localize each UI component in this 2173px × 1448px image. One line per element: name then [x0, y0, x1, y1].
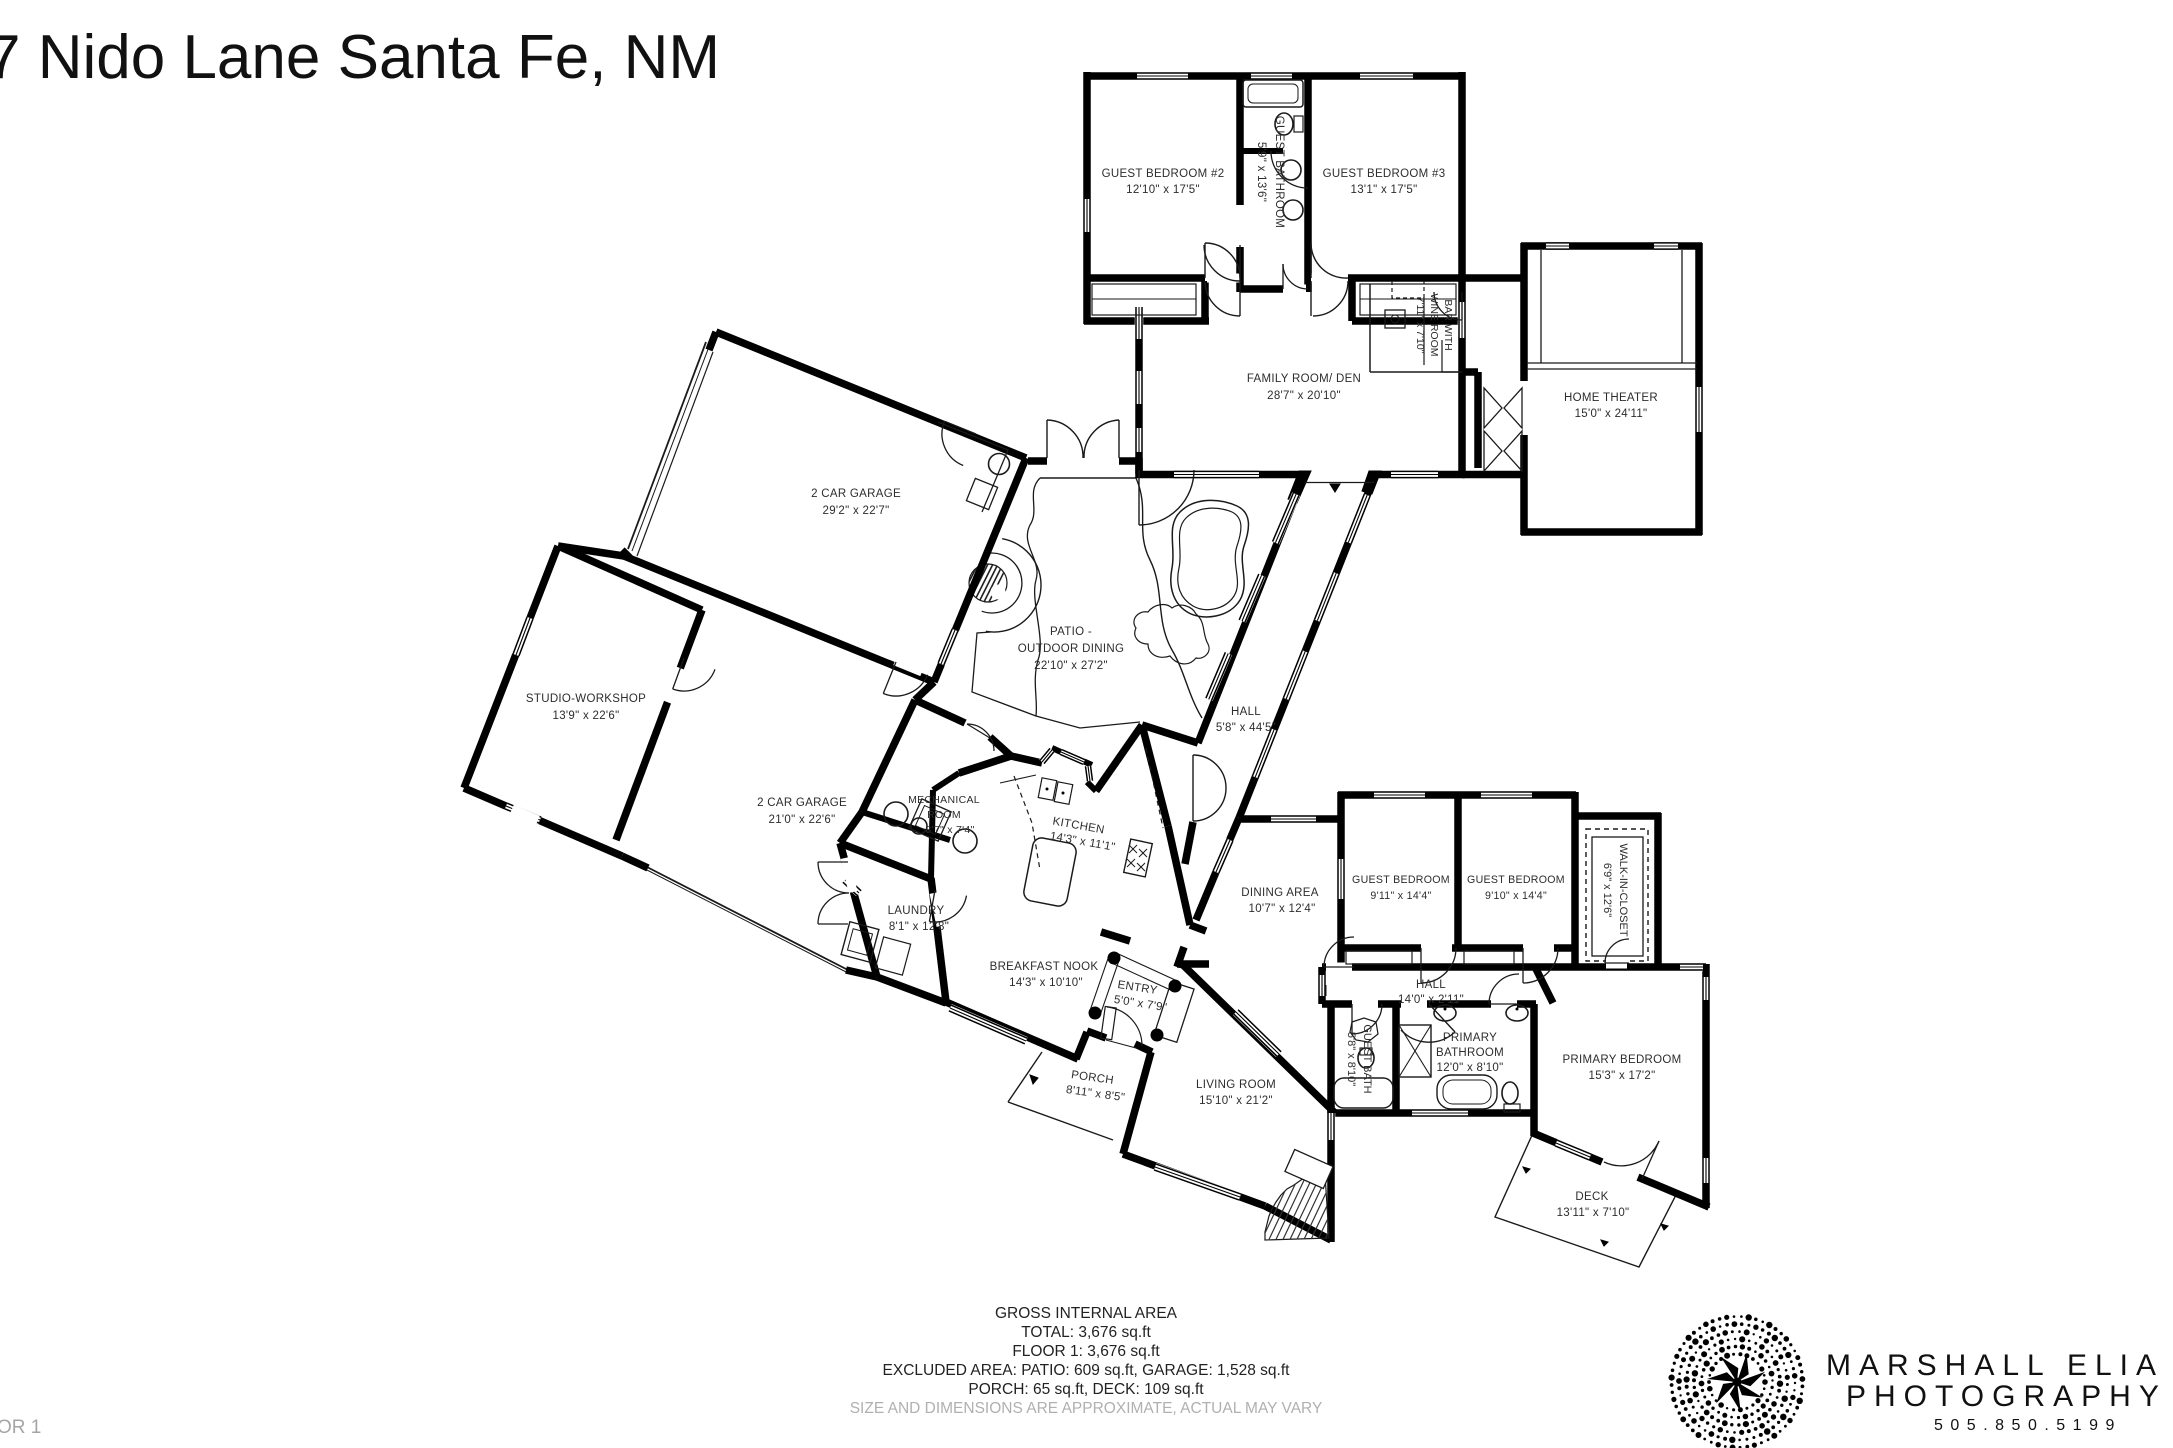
svg-text:5'9" x 13'6": 5'9" x 13'6"	[1255, 142, 1267, 202]
svg-text:14'3" x 10'10": 14'3" x 10'10"	[1009, 977, 1083, 989]
svg-text:WINE ROOM: WINE ROOM	[1428, 294, 1440, 357]
svg-text:13'9" x 22'6": 13'9" x 22'6"	[553, 710, 620, 722]
svg-text:12'0" x 8'10": 12'0" x 8'10"	[1437, 1062, 1504, 1074]
svg-text:DECK: DECK	[1575, 1191, 1608, 1203]
svg-text:EXCLUDED AREA: PATIO: 609 sq.f: EXCLUDED AREA: PATIO: 609 sq.ft, GARAGE:…	[883, 1362, 1291, 1379]
svg-text:15'3" x 17'2": 15'3" x 17'2"	[1589, 1070, 1656, 1082]
svg-text:28'7" x 20'10": 28'7" x 20'10"	[1267, 390, 1341, 402]
svg-text:GUEST BEDROOM #3: GUEST BEDROOM #3	[1323, 168, 1446, 180]
svg-text:14'0" x 2'11": 14'0" x 2'11"	[1398, 994, 1464, 1006]
svg-text:GUEST BATHROOM: GUEST BATHROOM	[1273, 116, 1285, 228]
svg-text:8'7" x 7'4": 8'7" x 7'4"	[925, 824, 974, 836]
svg-text:GUEST BEDROOM #2: GUEST BEDROOM #2	[1102, 168, 1225, 180]
svg-text:WALK-IN-CLOSET: WALK-IN-CLOSET	[1617, 843, 1629, 936]
svg-text:PRIMARY BEDROOM: PRIMARY BEDROOM	[1562, 1054, 1681, 1066]
svg-text:505.850.5199: 505.850.5199	[1934, 1417, 2122, 1434]
svg-text:21'0" x 22'6": 21'0" x 22'6"	[769, 814, 836, 826]
svg-text:MECHANICAL: MECHANICAL	[908, 794, 980, 806]
svg-text:LAUNDRY: LAUNDRY	[888, 905, 945, 917]
svg-text:13'1" x 17'5": 13'1" x 17'5"	[1351, 184, 1418, 196]
svg-text:GUEST BEDROOM: GUEST BEDROOM	[1352, 874, 1450, 886]
svg-text:7'11" x 7'10": 7'11" x 7'10"	[1414, 297, 1426, 354]
svg-text:MARSHALL ELIA: MARSHALL ELIA	[1826, 1349, 2164, 1382]
svg-text:PORCH: 65 sq.ft, DECK: 109 sq.: PORCH: 65 sq.ft, DECK: 109 sq.ft	[968, 1381, 1204, 1398]
svg-text:9'10" x 14'4": 9'10" x 14'4"	[1485, 890, 1547, 902]
svg-text:FAMILY ROOM/ DEN: FAMILY ROOM/ DEN	[1247, 373, 1361, 385]
svg-text:BREAKFAST NOOK: BREAKFAST NOOK	[990, 961, 1099, 973]
svg-text:PATIO -: PATIO -	[1050, 626, 1092, 638]
svg-text:GROSS INTERNAL AREA: GROSS INTERNAL AREA	[995, 1305, 1178, 1322]
svg-text:10'7" x 12'4": 10'7" x 12'4"	[1249, 903, 1316, 915]
svg-text:FLOOR 1: 3,676 sq.ft: FLOOR 1: 3,676 sq.ft	[1012, 1343, 1160, 1360]
svg-text:GUEST BEDROOM: GUEST BEDROOM	[1467, 874, 1565, 886]
svg-text:DINING AREA: DINING AREA	[1241, 887, 1318, 899]
svg-text:15'10" x 21'2": 15'10" x 21'2"	[1199, 1095, 1273, 1107]
svg-text:2 CAR GARAGE: 2 CAR GARAGE	[811, 488, 901, 500]
svg-text:2 CAR GARAGE: 2 CAR GARAGE	[757, 797, 847, 809]
svg-text:BAR WITH: BAR WITH	[1442, 299, 1454, 350]
svg-text:PHOTOGRAPHY: PHOTOGRAPHY	[1846, 1380, 2167, 1413]
svg-text:STUDIO-WORKSHOP: STUDIO-WORKSHOP	[526, 693, 646, 705]
svg-text:8'1" x 12'8": 8'1" x 12'8"	[889, 921, 949, 933]
svg-text:15'0" x 24'11": 15'0" x 24'11"	[1575, 408, 1648, 420]
svg-text:9'11" x 14'4": 9'11" x 14'4"	[1370, 890, 1431, 902]
svg-text:ROOM: ROOM	[927, 809, 961, 821]
svg-text:LIVING ROOM: LIVING ROOM	[1196, 1079, 1276, 1091]
svg-text:GUEST BATH: GUEST BATH	[1361, 1024, 1373, 1093]
svg-text:6'9" x 12'6": 6'9" x 12'6"	[1601, 863, 1613, 917]
svg-text:HALL: HALL	[1231, 706, 1261, 718]
svg-text:OUTDOOR DINING: OUTDOOR DINING	[1018, 643, 1124, 655]
svg-text:5'8" x 8'10": 5'8" x 8'10"	[1345, 1032, 1357, 1086]
svg-text:FLOOR 1: FLOOR 1	[0, 1417, 41, 1438]
svg-text:TOTAL: 3,676 sq.ft: TOTAL: 3,676 sq.ft	[1021, 1324, 1151, 1341]
svg-text:7 Nido Lane Santa Fe, NM: 7 Nido Lane Santa Fe, NM	[0, 23, 720, 92]
svg-text:HOME THEATER: HOME THEATER	[1564, 392, 1658, 404]
svg-text:PRIMARY: PRIMARY	[1443, 1032, 1497, 1044]
svg-text:SIZE AND DIMENSIONS ARE APPROX: SIZE AND DIMENSIONS ARE APPROXIMATE, ACT…	[850, 1400, 1323, 1417]
svg-text:22'10" x 27'2": 22'10" x 27'2"	[1034, 660, 1108, 672]
svg-text:29'2" x 22'7": 29'2" x 22'7"	[823, 505, 890, 517]
svg-text:HALL: HALL	[1416, 979, 1446, 991]
svg-text:5'8" x 44'5": 5'8" x 44'5"	[1216, 722, 1276, 734]
svg-text:BATHROOM: BATHROOM	[1436, 1047, 1504, 1059]
svg-text:12'10" x 17'5": 12'10" x 17'5"	[1126, 184, 1200, 196]
svg-text:13'11" x 7'10": 13'11" x 7'10"	[1557, 1207, 1630, 1219]
